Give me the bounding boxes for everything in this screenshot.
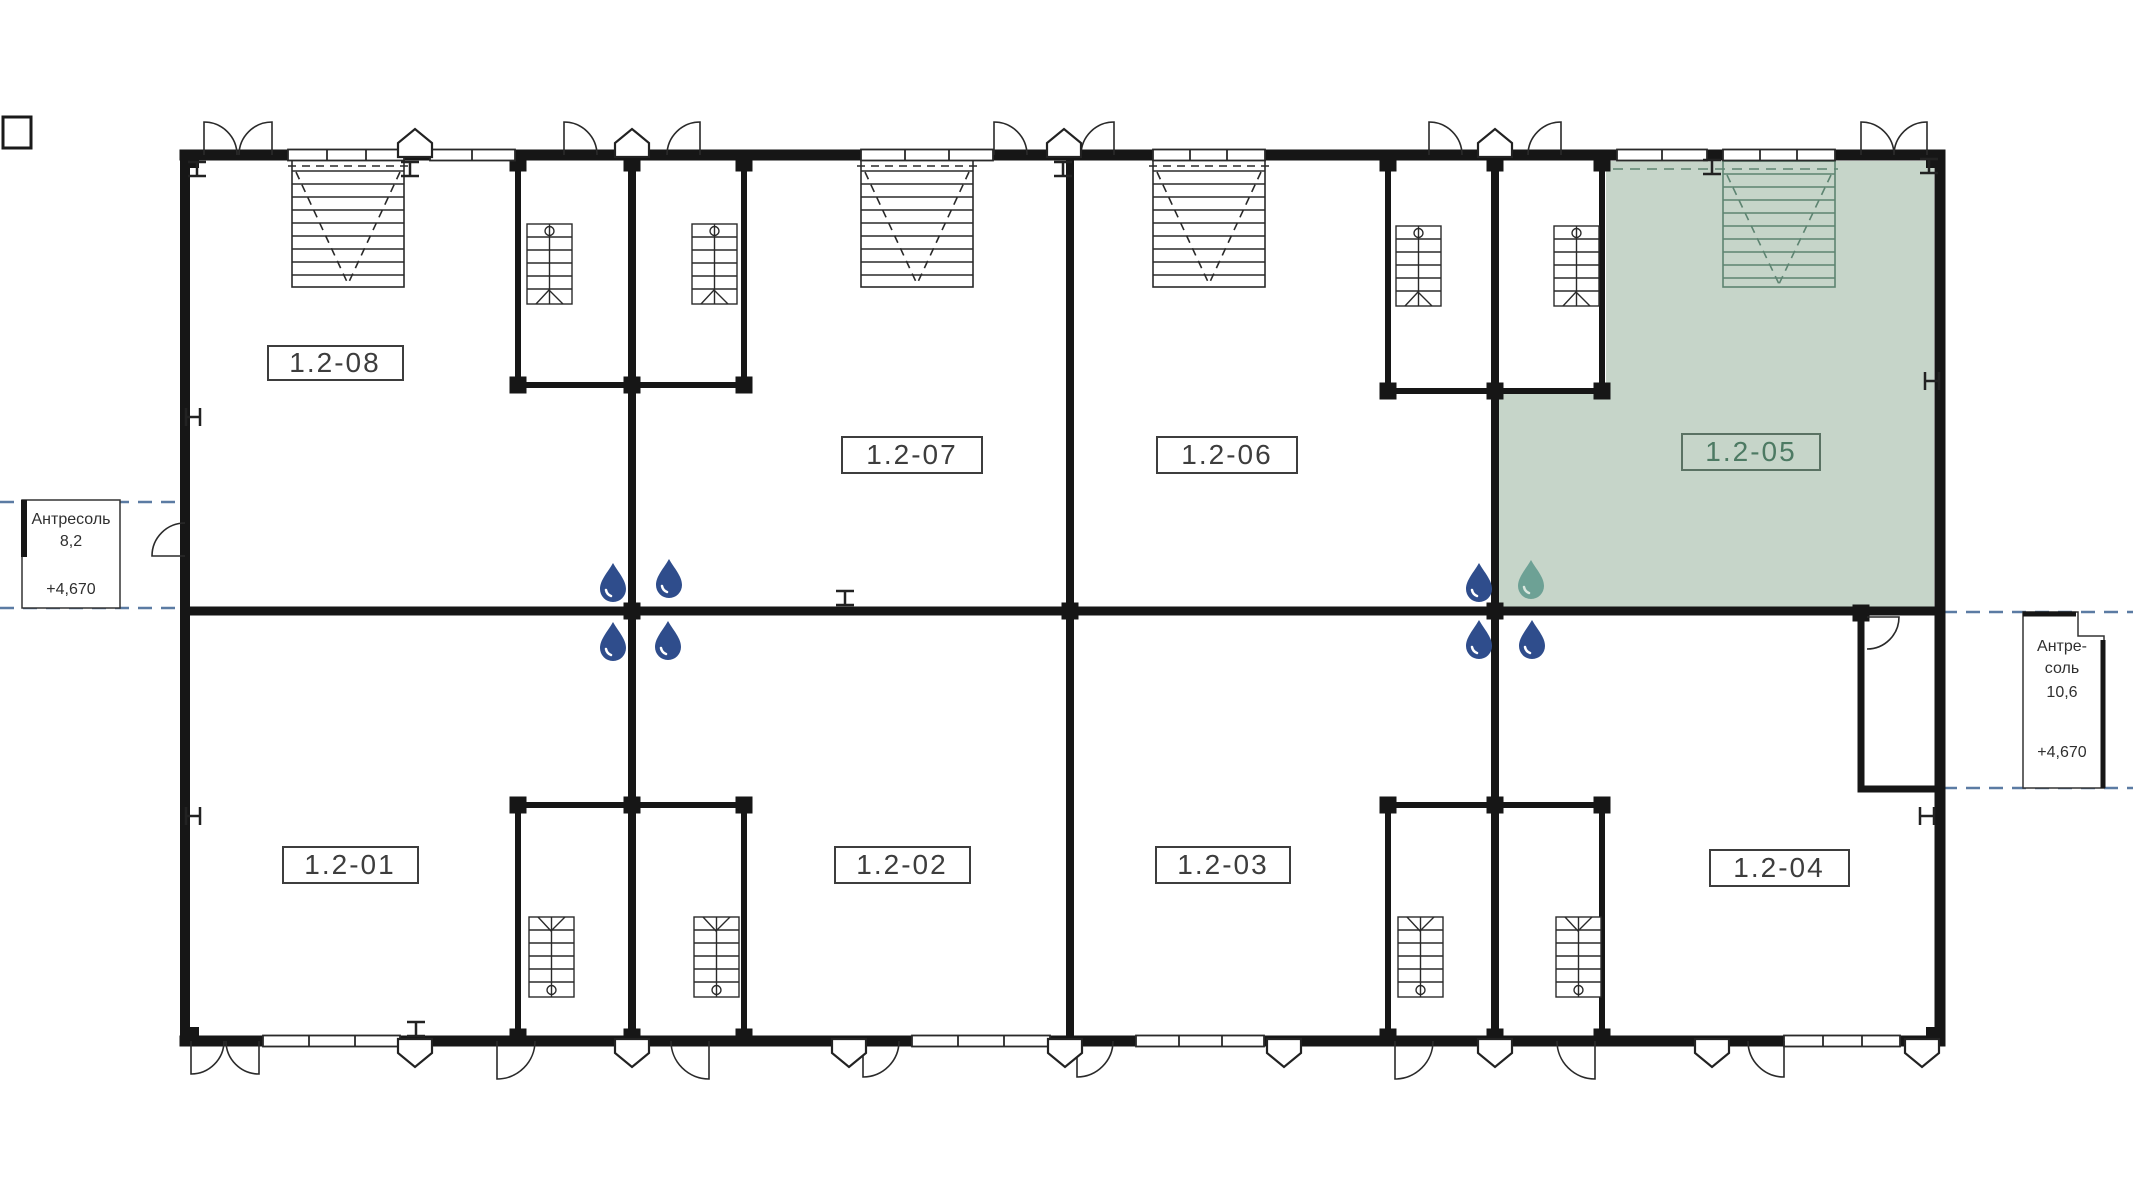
entrance-arrow-icon	[1695, 1039, 1729, 1067]
unit-area-1.2-03[interactable]	[1075, 616, 1490, 1036]
window	[861, 150, 993, 161]
entrance-arrow-icon	[615, 1039, 649, 1067]
door-arc	[671, 1041, 709, 1079]
mezzanine-right-callout: Антре- соль 10,6 +4,670	[2023, 612, 2104, 788]
entrance-arrow-icon	[1478, 129, 1512, 157]
unit-area-1.2-02[interactable]	[637, 616, 1065, 1036]
unit-area-1.2-07[interactable]	[637, 160, 1065, 606]
mezzanine-right-title-line2: соль	[2045, 660, 2079, 677]
closet-staircase	[1554, 226, 1599, 306]
unit-area-1.2-04[interactable]	[1500, 616, 1935, 1036]
door-arc	[1557, 1041, 1595, 1079]
entrance-arrow-icon	[832, 1039, 866, 1067]
mezzanine-right-elevation: +4,670	[2037, 744, 2086, 761]
window	[1617, 150, 1707, 161]
window	[263, 1036, 400, 1047]
entrance-arrow-icon	[398, 129, 432, 157]
unit-area-1.2-06[interactable]	[1075, 160, 1490, 606]
legend-empty-square	[3, 117, 31, 148]
floor-plan-canvas: 1.2-08 1.2-07 1.2-06 1.2-05 1.2-01 1.2-0…	[0, 0, 2133, 1200]
entrance-arrow-icon	[1905, 1039, 1939, 1067]
window	[1153, 150, 1265, 161]
mezzanine-left-title: Антресоль	[31, 511, 110, 528]
door-arc	[497, 1041, 535, 1079]
window	[1136, 1036, 1264, 1047]
entrance-arrow-icon	[1047, 129, 1081, 157]
floor-plan-page: 1.2-08 1.2-07 1.2-06 1.2-05 1.2-01 1.2-0…	[0, 0, 2133, 1200]
mezzanine-right-title-line1: Антре-	[2037, 638, 2087, 655]
entrance-arrow-icon	[615, 129, 649, 157]
mezzanine-left-callout: Антресоль 8,2 +4,670	[22, 500, 120, 608]
unit-area-1.2-01[interactable]	[190, 616, 627, 1036]
door-arc	[1395, 1041, 1433, 1079]
mezzanine-right-area: 10,6	[2046, 684, 2077, 701]
mezzanine-left-area: 8,2	[60, 533, 82, 550]
window	[1723, 150, 1835, 161]
svg-text:1.2-05: 1.2-05	[1705, 436, 1796, 467]
window	[430, 150, 515, 161]
entrance-arrow-icon	[398, 1039, 432, 1067]
mezzanine-left-elevation: +4,670	[46, 581, 95, 598]
window	[1784, 1036, 1900, 1047]
entrance-arrow-icon	[1267, 1039, 1301, 1067]
unit-area-1.2-08[interactable]	[190, 160, 627, 606]
window	[912, 1036, 1050, 1047]
window	[288, 150, 404, 161]
entrance-arrow-icon	[1478, 1039, 1512, 1067]
